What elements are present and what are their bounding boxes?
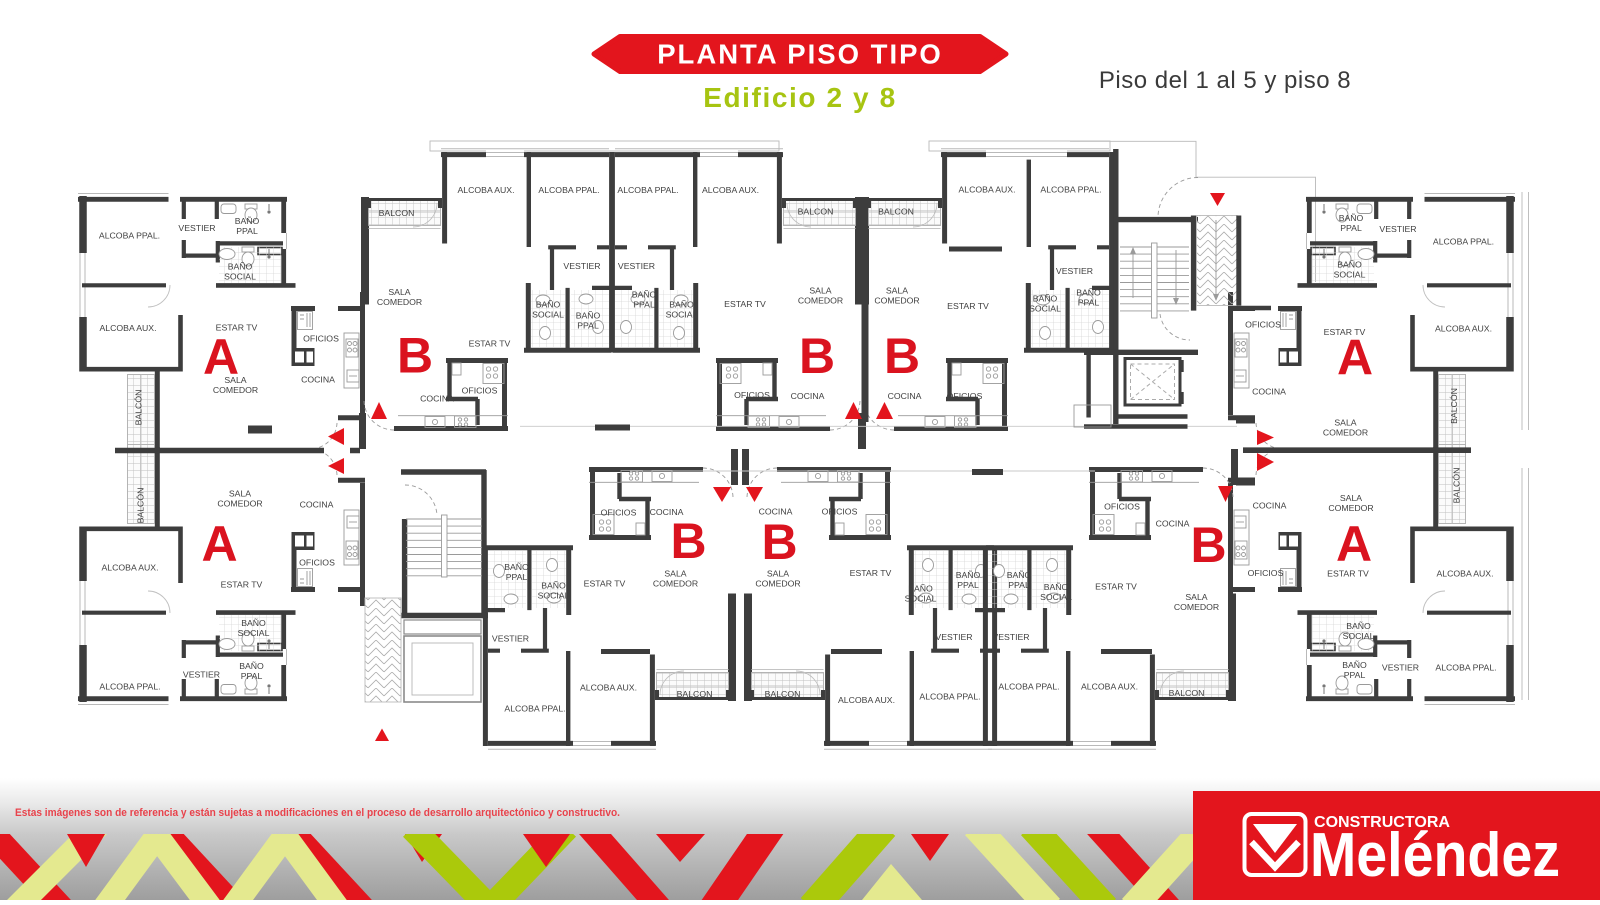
svg-text:VESTIER: VESTIER — [992, 632, 1029, 642]
svg-text:ALCOBA AUX.: ALCOBA AUX. — [102, 563, 159, 573]
svg-text:ALCOBA PPAL.: ALCOBA PPAL. — [1433, 237, 1494, 247]
svg-text:A: A — [1336, 516, 1372, 572]
svg-text:B: B — [761, 514, 797, 570]
svg-text:BAÑOSOCIAL: BAÑOSOCIAL — [1343, 621, 1375, 641]
svg-text:BAÑOSOCIAL: BAÑOSOCIAL — [224, 262, 256, 282]
svg-text:BAÑOSOCIAL: BAÑOSOCIAL — [238, 618, 270, 638]
svg-text:ESTAR TV: ESTAR TV — [947, 301, 989, 311]
svg-text:ALCOBA PPAL.: ALCOBA PPAL. — [504, 704, 565, 714]
svg-text:B: B — [884, 328, 920, 384]
svg-text:ESTAR TV: ESTAR TV — [1095, 582, 1137, 592]
svg-text:COCINA: COCINA — [1252, 387, 1286, 397]
svg-text:BALCON: BALCON — [798, 207, 834, 217]
svg-text:VESTIER: VESTIER — [492, 634, 529, 644]
svg-text:BAÑOPPAL: BAÑOPPAL — [1339, 213, 1364, 233]
svg-text:BAÑOPPAL: BAÑOPPAL — [504, 562, 529, 582]
svg-text:ALCOBA AUX.: ALCOBA AUX. — [959, 185, 1016, 195]
svg-text:OFICIOS: OFICIOS — [822, 507, 858, 517]
svg-text:BALCÓN: BALCÓN — [134, 390, 144, 426]
svg-text:A: A — [203, 329, 239, 385]
svg-text:OFICIOS: OFICIOS — [947, 391, 983, 401]
svg-text:ALCOBA PPAL.: ALCOBA PPAL. — [99, 682, 160, 692]
svg-text:B: B — [670, 513, 706, 569]
svg-text:Meléndez: Meléndez — [1310, 821, 1560, 890]
svg-text:VESTIER: VESTIER — [935, 632, 972, 642]
svg-text:ALCOBA PPAL.: ALCOBA PPAL. — [617, 185, 678, 195]
svg-text:ESTAR TV: ESTAR TV — [221, 580, 263, 590]
svg-text:VESTIER: VESTIER — [563, 261, 600, 271]
svg-text:BAÑOSOCIAL: BAÑOSOCIAL — [1334, 260, 1366, 280]
svg-text:BAÑOPPAL: BAÑOPPAL — [632, 290, 657, 310]
svg-text:BALCÓN: BALCÓN — [1449, 388, 1459, 424]
svg-text:COCINA: COCINA — [300, 500, 334, 510]
svg-text:B: B — [397, 328, 433, 384]
svg-text:OFICIOS: OFICIOS — [299, 558, 335, 568]
svg-text:OFICIOS: OFICIOS — [303, 334, 339, 344]
svg-text:BAÑOPPAL: BAÑOPPAL — [956, 570, 981, 590]
svg-text:BALCON: BALCON — [677, 689, 713, 699]
svg-text:ALCOBA AUX.: ALCOBA AUX. — [838, 695, 895, 705]
svg-text:Estas imágenes son de referenc: Estas imágenes son de referencia y están… — [15, 807, 620, 819]
svg-text:ALCOBA PPAL.: ALCOBA PPAL. — [99, 231, 160, 241]
svg-text:BAÑOPPAL: BAÑOPPAL — [1342, 660, 1367, 680]
svg-text:OFICIOS: OFICIOS — [601, 508, 637, 518]
svg-text:BALCON: BALCON — [878, 207, 914, 217]
svg-text:BALCON: BALCON — [379, 208, 415, 218]
svg-text:Edificio 2 y 8: Edificio 2 y 8 — [703, 82, 897, 113]
svg-text:ALCOBA PPAL.: ALCOBA PPAL. — [998, 682, 1059, 692]
svg-text:BAÑOSOCIAL: BAÑOSOCIAL — [666, 300, 698, 320]
svg-text:COCINA: COCINA — [888, 391, 922, 401]
svg-text:BAÑOSOCIAL: BAÑOSOCIAL — [905, 584, 937, 604]
svg-text:COCINA: COCINA — [1253, 501, 1287, 511]
svg-text:ESTAR TV: ESTAR TV — [850, 568, 892, 578]
svg-text:ALCOBA PPAL.: ALCOBA PPAL. — [919, 692, 980, 702]
svg-text:VESTIER: VESTIER — [1056, 266, 1093, 276]
svg-text:B: B — [1190, 517, 1226, 573]
svg-text:VESTIER: VESTIER — [1382, 663, 1419, 673]
svg-text:VESTIER: VESTIER — [618, 261, 655, 271]
svg-text:OFICIOS: OFICIOS — [1104, 502, 1140, 512]
svg-text:BALCON: BALCON — [1169, 688, 1205, 698]
svg-text:ALCOBA AUX.: ALCOBA AUX. — [702, 185, 759, 195]
svg-text:BAÑOSOCIAL: BAÑOSOCIAL — [538, 581, 570, 601]
svg-text:OFICIOS: OFICIOS — [1248, 568, 1284, 578]
svg-text:COCINA: COCINA — [301, 375, 335, 385]
svg-text:VESTIER: VESTIER — [178, 223, 215, 233]
svg-text:ALCOBA AUX.: ALCOBA AUX. — [458, 185, 515, 195]
svg-text:ALCOBA AUX.: ALCOBA AUX. — [580, 683, 637, 693]
svg-text:ALCOBA PPAL.: ALCOBA PPAL. — [1040, 185, 1101, 195]
svg-text:COCINA: COCINA — [420, 394, 454, 404]
svg-text:OFICIOS: OFICIOS — [462, 386, 498, 396]
svg-text:Piso del 1 al 5 y piso 8: Piso del 1 al 5 y piso 8 — [1099, 67, 1351, 94]
svg-text:BAÑOPPAL: BAÑOPPAL — [1007, 570, 1032, 590]
svg-text:BAÑOSOCIAL: BAÑOSOCIAL — [532, 300, 564, 320]
svg-text:BAÑOPPAL: BAÑOPPAL — [235, 216, 260, 236]
svg-text:BAÑOSOCIAL: BAÑOSOCIAL — [1029, 294, 1061, 314]
svg-text:A: A — [201, 516, 237, 572]
svg-text:ESTAR TV: ESTAR TV — [724, 299, 766, 309]
svg-text:VESTIER: VESTIER — [183, 670, 220, 680]
svg-text:COCINA: COCINA — [791, 391, 825, 401]
svg-text:OFICIOS: OFICIOS — [1245, 320, 1281, 330]
svg-text:ESTAR TV: ESTAR TV — [469, 339, 511, 349]
svg-text:A: A — [1337, 330, 1373, 386]
svg-text:B: B — [799, 328, 835, 384]
svg-text:ALCOBA AUX.: ALCOBA AUX. — [1437, 569, 1494, 579]
svg-text:ALCOBA AUX.: ALCOBA AUX. — [1435, 324, 1492, 334]
svg-text:COCINA: COCINA — [1156, 519, 1190, 529]
svg-text:ALCOBA AUX.: ALCOBA AUX. — [1081, 682, 1138, 692]
svg-text:PLANTA PISO TIPO: PLANTA PISO TIPO — [657, 39, 943, 70]
svg-text:BALCÓN: BALCÓN — [1452, 468, 1462, 504]
svg-text:VESTIER: VESTIER — [1379, 224, 1416, 234]
svg-text:OFICIOS: OFICIOS — [734, 390, 770, 400]
svg-text:ALCOBA AUX.: ALCOBA AUX. — [100, 323, 157, 333]
svg-text:ALCOBA PPAL.: ALCOBA PPAL. — [538, 185, 599, 195]
svg-text:ESTAR TV: ESTAR TV — [584, 579, 626, 589]
svg-text:ALCOBA PPAL.: ALCOBA PPAL. — [1435, 663, 1496, 673]
svg-text:BAÑOPPAL: BAÑOPPAL — [576, 311, 601, 331]
svg-text:BAÑOSOCIAL: BAÑOSOCIAL — [1040, 582, 1072, 602]
svg-text:BALCÓN: BALCÓN — [136, 488, 146, 524]
svg-text:BAÑOPPAL: BAÑOPPAL — [1076, 288, 1101, 308]
svg-text:BALCON: BALCON — [765, 689, 801, 699]
svg-text:BAÑOPPAL: BAÑOPPAL — [239, 661, 264, 681]
